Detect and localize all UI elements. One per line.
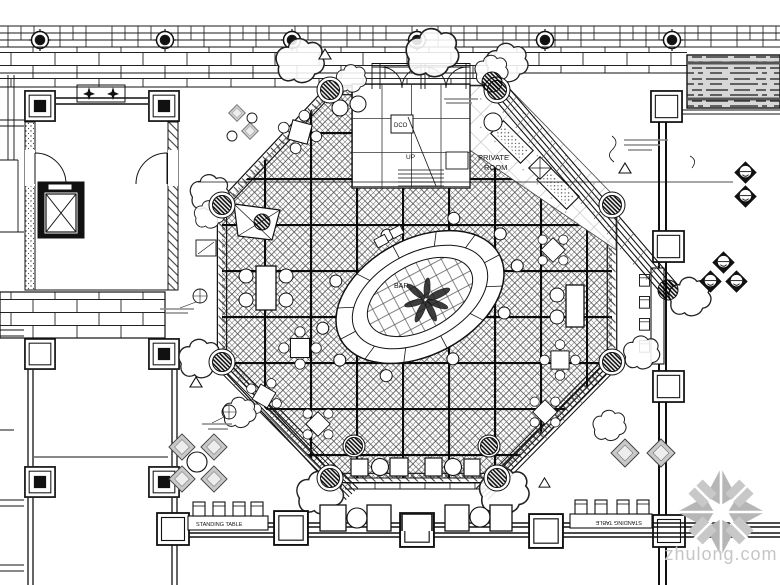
- zhulong-watermark-text: zhulong.com: [664, 544, 777, 564]
- standing-table-right: STANDING TABLE: [570, 500, 652, 528]
- reference-triangle: [190, 377, 202, 387]
- floor-plan-canvas: PRIVATE ROOM DCO UP: [0, 0, 780, 585]
- callout-note: [160, 289, 207, 313]
- elevation-marker: [726, 271, 747, 292]
- bar-label: BAR: [394, 283, 408, 290]
- floor-plan-drawing: PRIVATE ROOM DCO UP: [0, 0, 780, 585]
- elevation-marker: [735, 162, 756, 183]
- standing-table-left-label: STANDING TABLE: [196, 522, 243, 528]
- dco-label: DCO: [394, 123, 408, 129]
- standing-table-right-label: STANDING TABLE: [595, 519, 642, 525]
- reference-triangle: [539, 478, 550, 487]
- reference-triangle: [619, 163, 631, 173]
- left-upper-room: [0, 75, 179, 506]
- private-room-label: PRIVATE: [478, 153, 509, 162]
- left-lower-room: [0, 339, 179, 585]
- standing-table-left: STANDING TABLE: [188, 502, 268, 530]
- elevation-marker: [713, 252, 734, 273]
- up-label: UP: [406, 154, 415, 161]
- private-room-label-2: ROOM: [484, 163, 507, 172]
- grand-piano: [234, 204, 280, 240]
- elevation-marker: [735, 186, 756, 207]
- elevator: [38, 182, 84, 238]
- leader-note: [609, 136, 694, 168]
